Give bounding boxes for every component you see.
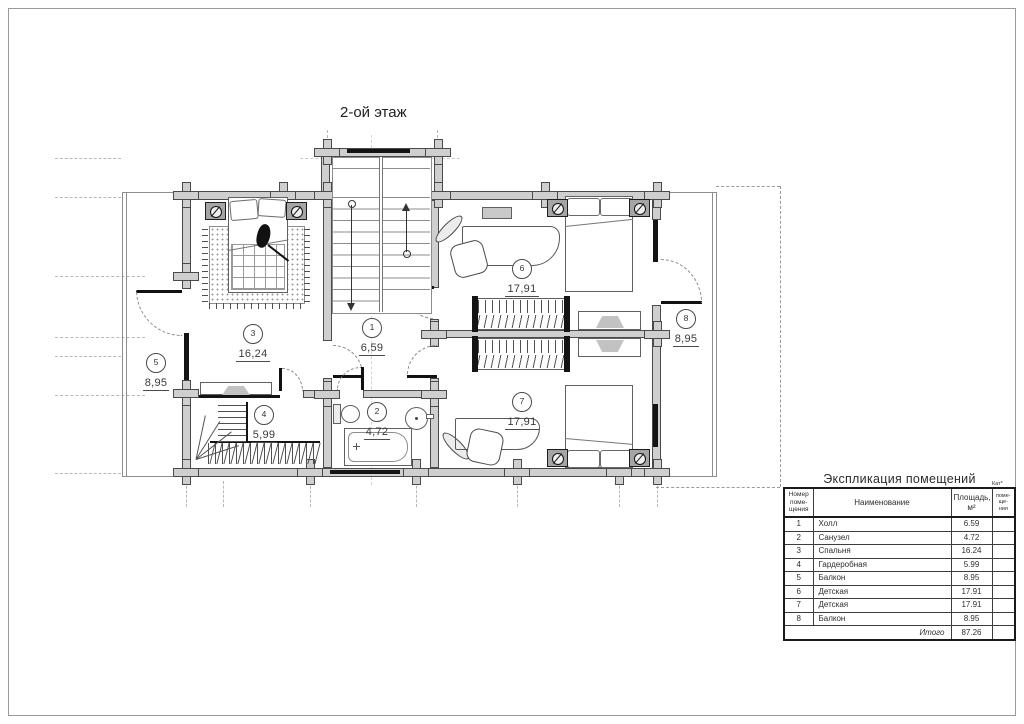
lamp-icon [552,203,564,215]
rug-fringe [304,226,310,302]
rug-fringe [209,303,303,309]
stair-arrowhead [402,203,410,211]
stair-arrow-down [351,205,352,305]
stair-start-circle [403,250,411,258]
rug-fringe [202,226,208,302]
table-total-row: Итого 87.26 [784,626,1015,641]
bathtub-faucet [356,443,357,450]
log-cross [314,390,340,399]
wall [323,200,332,341]
hanging-clothes [477,315,566,328]
lamp-icon [634,203,646,215]
cell-name: Спальня [813,545,951,559]
cell-name: Детская [813,599,951,613]
balcony5-rail [126,192,127,477]
wall-shelf [482,207,512,219]
cell-num: 7 [784,599,813,613]
log-cross [504,468,530,477]
plan-title: 2-ой этаж [340,104,490,121]
room-area: 16,24 [236,348,269,362]
cell-num: 4 [784,558,813,572]
cell-area: 8.95 [951,612,992,626]
lamp-icon [634,453,646,465]
cell-name: Балкон [813,572,951,586]
grid-line [55,337,145,338]
pillow [567,450,600,468]
cell-name: Санузел [813,531,951,545]
window [184,333,189,380]
window [347,149,410,153]
nightstand [629,449,650,467]
wardrobe-cap [472,296,478,332]
log-cross [173,468,199,477]
window [330,470,400,474]
col-header-number: Номер поме- щения [784,488,813,517]
pillow [567,198,600,216]
lamp-icon [291,206,303,218]
log-cross [297,468,323,477]
nightstand [547,199,568,217]
cell-area: 6.59 [951,517,992,531]
room-label-hall: 1 6,59 [350,318,394,356]
roof-outline [656,487,780,488]
cell-cat [992,545,1015,559]
window [653,404,658,447]
window [653,220,658,262]
cell-num: 8 [784,612,813,626]
nightstand [547,449,568,467]
cell-area: 5.99 [951,558,992,572]
balcony5-rail [122,192,123,477]
cell-area: 17.91 [951,585,992,599]
log-cross [421,390,447,399]
room-label-bath: 2 4,72 [355,402,399,440]
toilet-tank [333,404,341,424]
grid-line [55,356,121,357]
log-cross [644,468,670,477]
table-row: 5 Балкон 8.95 [784,572,1015,586]
room-area: 5,99 [251,429,278,443]
log-cross [425,148,451,157]
room-area: 6,59 [359,342,386,356]
cell-num: 3 [784,545,813,559]
stair-treads [332,197,379,311]
wall [439,330,652,338]
col-header-category: поме- ще- ния [992,488,1015,517]
stair-stringer [379,157,383,312]
grid-line [55,197,121,198]
stair-arrowhead [347,303,355,311]
partition [191,395,280,398]
cell-name: Детская [813,585,951,599]
log-cross [403,468,429,477]
cell-num: 1 [784,517,813,531]
room-number: 8 [676,309,696,329]
drawing-sheet: 2-ой этаж [0,0,1024,724]
lamp-icon [552,453,564,465]
table-title: Экспликация помещений [783,472,1016,486]
room-number: 2 [367,402,387,422]
hanging-clothes [477,355,566,368]
room-number: 3 [243,324,263,344]
explication-table: Экспликация помещений Кат* Номер поме- щ… [783,472,1016,641]
stair-arrow-up [406,210,407,252]
room-area: 8,95 [673,333,700,347]
table-header-cat-top: Кат* [992,481,1003,487]
table-row: 3 Спальня 16.24 [784,545,1015,559]
table-row: 2 Санузел 4.72 [784,531,1015,545]
grid-line [223,481,224,507]
cell-cat [992,626,1015,641]
cell-name: Гардеробная [813,558,951,572]
cell-area: 8.95 [951,572,992,586]
log-cross [314,148,340,157]
total-label: Итого [784,626,951,641]
col-header-name: Наименование [813,488,951,517]
sink-tap [426,414,434,419]
wardrobe-cap [472,336,478,372]
room-area: 4,72 [364,426,391,440]
log-cross [173,272,199,281]
grid-line [55,395,145,396]
total-value: 87.26 [951,626,992,641]
room-label-child7: 7 17,91 [500,392,544,430]
cell-num: 5 [784,572,813,586]
lamp-icon [210,206,222,218]
room-label-child6: 6 17,91 [500,259,544,297]
hanging-clothes [478,340,564,353]
log-cross [173,191,199,200]
cell-cat [992,517,1015,531]
sink-drain [415,417,418,420]
table-row: 7 Детская 17.91 [784,599,1015,613]
nightstand [629,199,650,217]
cell-cat [992,585,1015,599]
cell-area: 16.24 [951,545,992,559]
cell-area: 4.72 [951,531,992,545]
cell-name: Холл [813,517,951,531]
cell-name: Балкон [813,612,951,626]
roof-outline [716,186,780,187]
cell-cat [992,599,1015,613]
pillow [229,199,259,221]
wardrobe-cap [564,296,570,332]
balcony8-rail [716,192,717,477]
door-leaf-bath [361,367,364,390]
log-cross [421,330,447,339]
cell-num: 2 [784,531,813,545]
room-number: 1 [362,318,382,338]
room-area: 8,95 [143,377,170,391]
cell-cat [992,558,1015,572]
cell-cat [992,572,1015,586]
room-label-wardrobe: 4 5,99 [242,405,286,443]
room-number: 5 [146,353,166,373]
stair-start-circle [348,200,356,208]
cell-cat [992,612,1015,626]
wardrobe-cap [564,336,570,372]
cell-cat [992,531,1015,545]
table-row: 8 Балкон 8.95 [784,612,1015,626]
room-label-bedroom: 3 16,24 [231,324,275,362]
grid-line [55,276,145,277]
pillow [257,198,286,218]
log-cross [606,468,632,477]
cell-area: 17.91 [951,599,992,613]
nightstand [205,202,226,220]
room-label-balcony8: 8 8,95 [664,309,708,347]
table-row: 6 Детская 17.91 [784,585,1015,599]
grid-line [55,158,121,159]
table-row: 4 Гардеробная 5.99 [784,558,1015,572]
door-leaf-child7 [407,375,437,378]
room-number: 6 [512,259,532,279]
grid-line [55,473,121,474]
room-label-balcony5: 5 8,95 [134,353,178,391]
room-area: 17,91 [505,416,538,430]
hanging-clothes [209,443,322,464]
cell-num: 6 [784,585,813,599]
nightstand [286,202,307,220]
hanging-clothes [478,300,564,313]
balcony8-rail [712,192,713,477]
room-number: 7 [512,392,532,412]
room-number: 4 [254,405,274,425]
roof-outline [780,186,781,487]
table-row: 1 Холл 6.59 [784,517,1015,531]
col-header-area: Площадь, м² [951,488,992,517]
room-area: 17,91 [505,283,538,297]
